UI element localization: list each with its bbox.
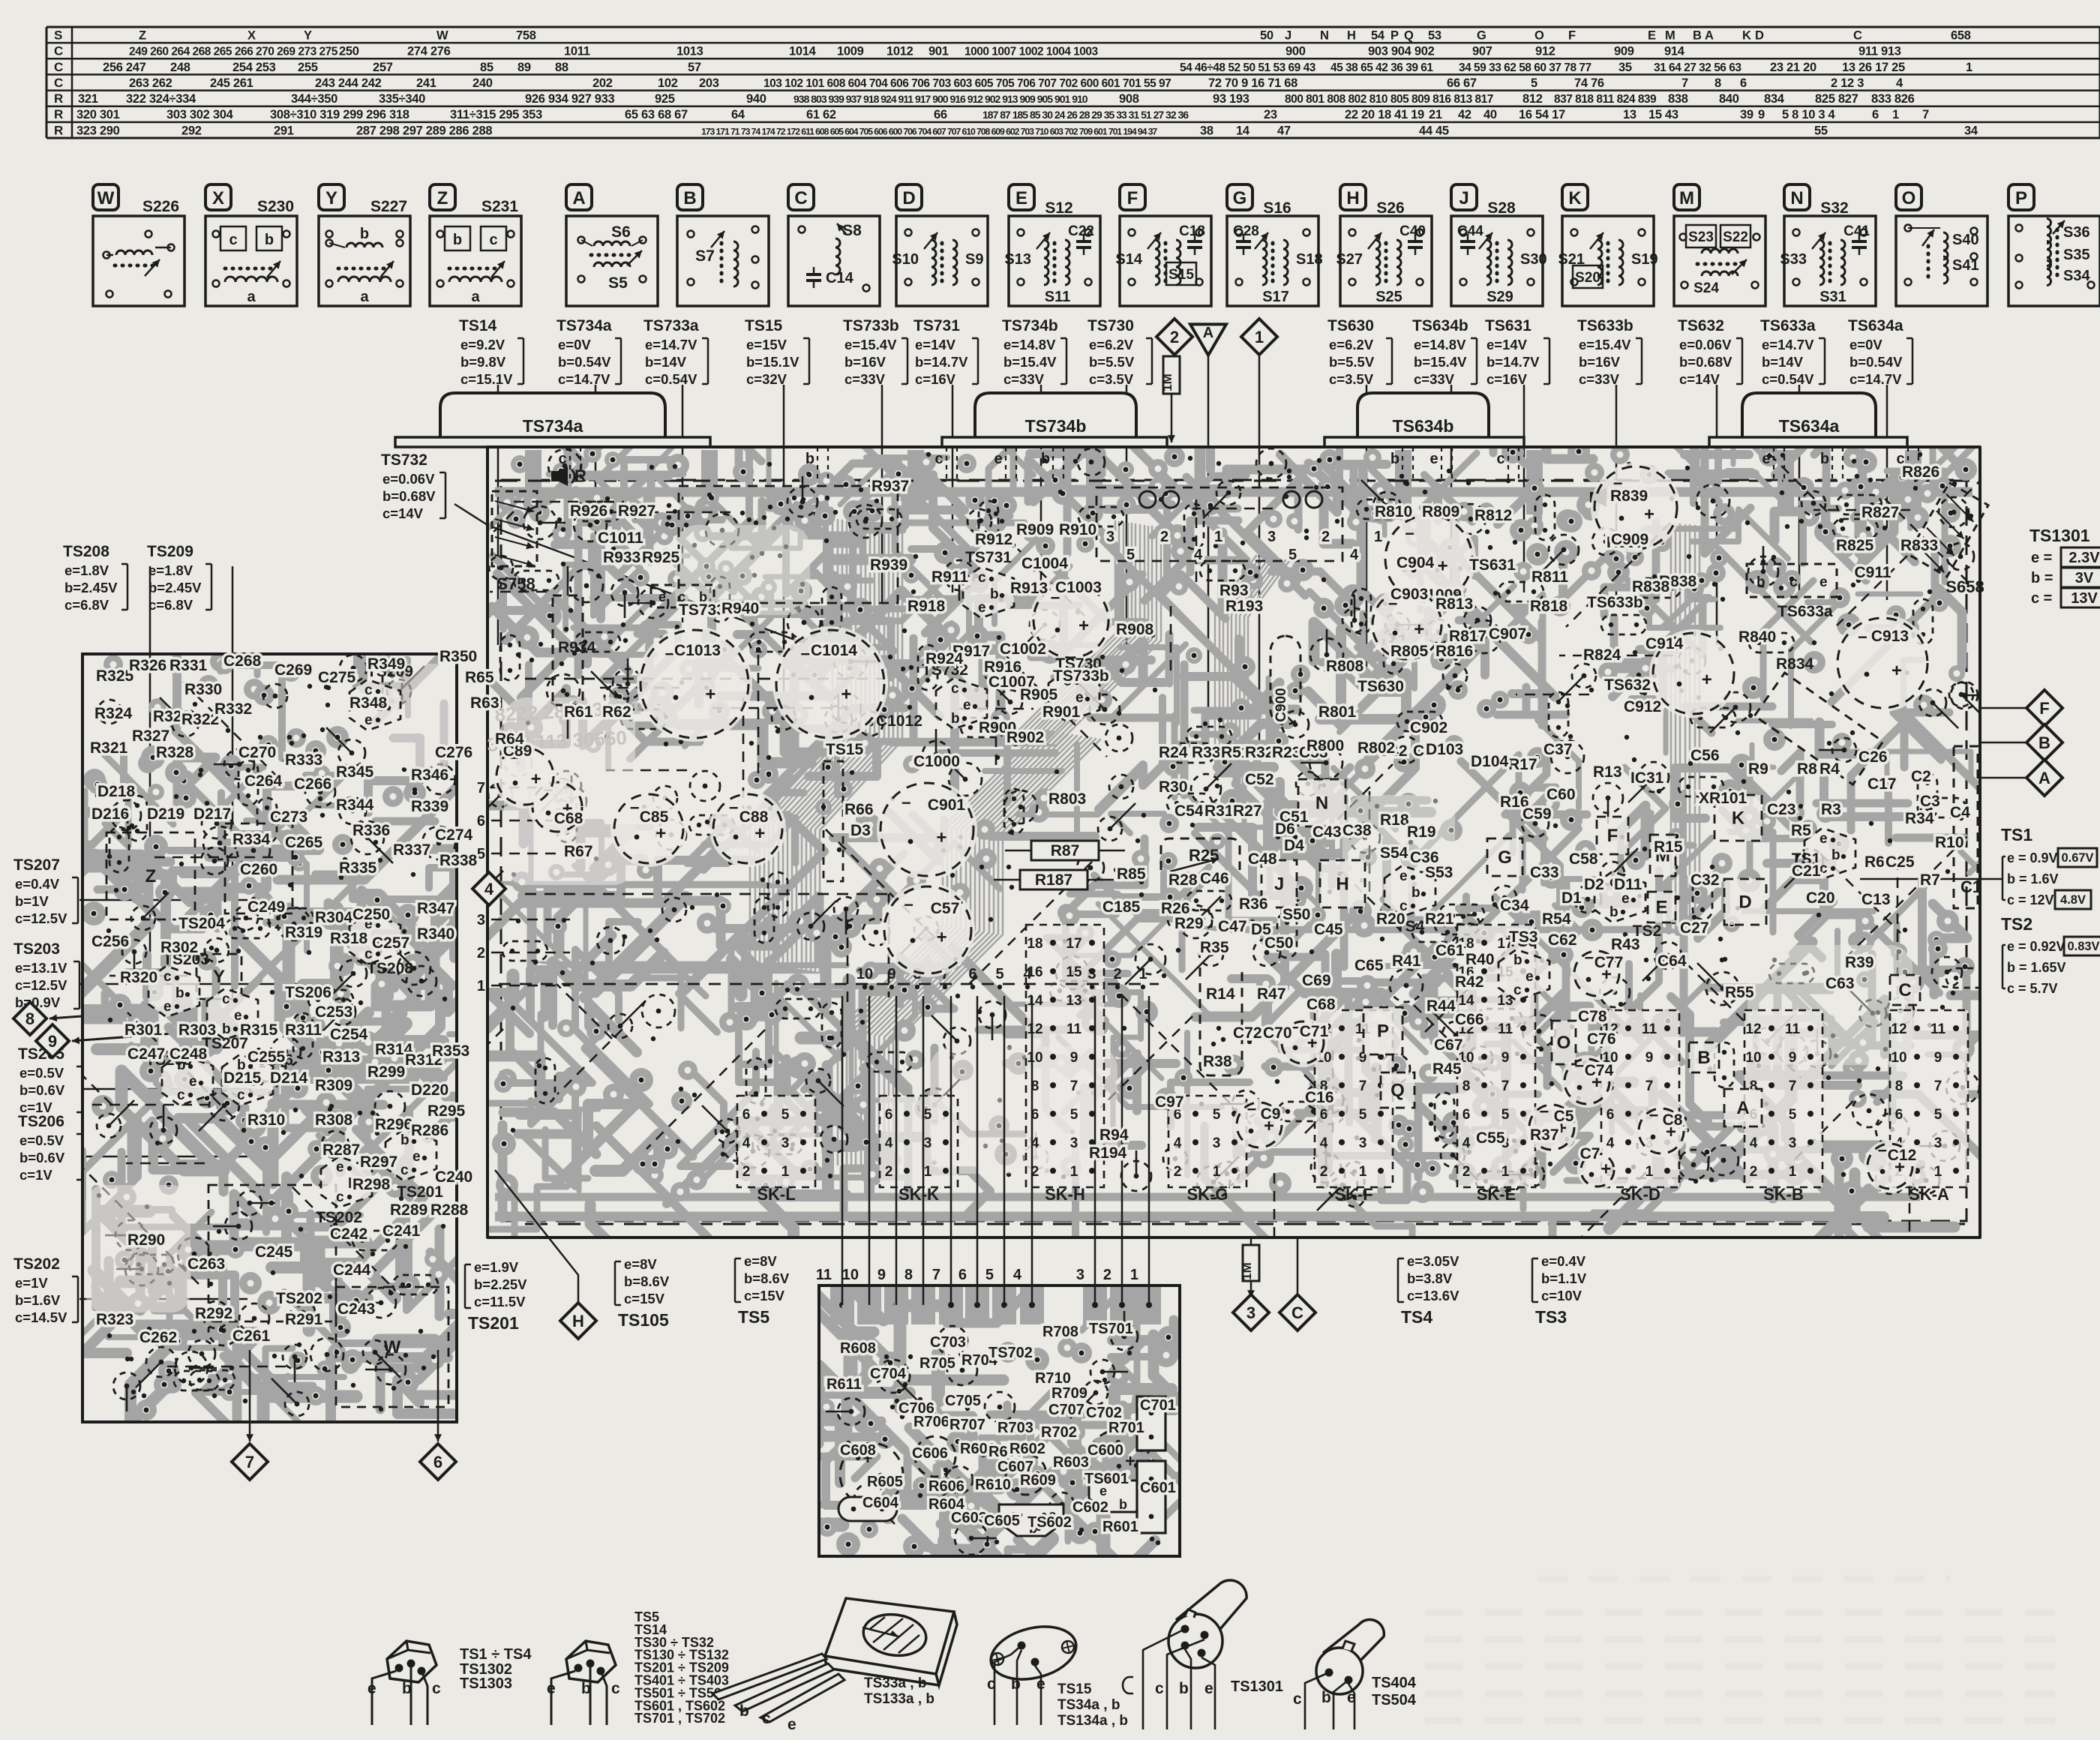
svg-text:C27: C27: [1680, 919, 1709, 937]
svg-text:TS203: TS203: [13, 940, 60, 958]
svg-text:M: M: [1665, 29, 1675, 43]
svg-text:C55: C55: [1476, 1129, 1505, 1147]
svg-text:R940: R940: [721, 600, 759, 617]
svg-text:1: 1: [1501, 1164, 1510, 1180]
svg-text:2: 2: [477, 945, 485, 961]
svg-text:SK-H: SK-H: [1045, 1185, 1085, 1204]
svg-text:c: c: [611, 1680, 620, 1697]
svg-text:6: 6: [477, 813, 485, 829]
svg-text:R826: R826: [1902, 463, 1939, 481]
svg-text:e=15.4V: e=15.4V: [844, 337, 897, 352]
svg-text:R10: R10: [1935, 834, 1964, 851]
svg-text:H: H: [1347, 29, 1356, 43]
svg-text:J: J: [1459, 188, 1468, 208]
svg-text:b: b: [1321, 1689, 1331, 1706]
svg-text:e=0.06V: e=0.06V: [382, 471, 435, 487]
svg-text:S33: S33: [1780, 251, 1807, 268]
svg-text:TS733b: TS733b: [843, 317, 899, 334]
svg-text:c=12.5V: c=12.5V: [15, 910, 67, 926]
svg-text:c: c: [762, 1710, 771, 1727]
svg-text:C65: C65: [1354, 957, 1384, 974]
svg-text:658: 658: [1951, 29, 1971, 43]
svg-text:R926: R926: [570, 502, 607, 520]
svg-text:J: J: [1285, 29, 1291, 43]
svg-text:C265: C265: [285, 834, 323, 851]
svg-text:R812: R812: [1474, 507, 1512, 524]
svg-text:912: 912: [1535, 45, 1555, 58]
svg-text:3: 3: [477, 912, 485, 928]
svg-text:C12: C12: [1888, 1147, 1917, 1164]
svg-text:6: 6: [1462, 1107, 1471, 1123]
svg-text:812: 812: [1522, 92, 1543, 106]
svg-text:240: 240: [472, 76, 493, 90]
svg-text:938 803 939 937 918 924 911 91: 938 803 939 937 918 924 911 917 900 916 …: [793, 93, 1088, 105]
svg-text:c=14V: c=14V: [1679, 371, 1720, 387]
svg-text:S53: S53: [1425, 864, 1453, 881]
svg-text:e=14.8V: e=14.8V: [1414, 337, 1466, 352]
svg-text:800 801 808 802 810 805 809 81: 800 801 808 802 810 805 809 816 813 817: [1285, 93, 1493, 106]
svg-text:P: P: [1390, 29, 1399, 43]
svg-text:C901: C901: [928, 796, 966, 814]
svg-text:9: 9: [1934, 1050, 1942, 1066]
svg-text:C264: C264: [244, 772, 283, 790]
svg-text:6: 6: [958, 1267, 967, 1283]
svg-text:C5: C5: [1554, 1108, 1574, 1125]
svg-text:b = 1.6V: b = 1.6V: [2007, 871, 2059, 886]
svg-text:R40: R40: [1465, 951, 1495, 968]
svg-text:8: 8: [1462, 1078, 1471, 1094]
svg-text:R346: R346: [411, 766, 448, 784]
svg-text:8: 8: [1895, 1078, 1903, 1094]
svg-text:C606: C606: [912, 1445, 948, 1462]
svg-text:C250: C250: [352, 906, 390, 923]
svg-text:a: a: [360, 289, 369, 305]
svg-text:c=10V: c=10V: [1541, 1288, 1582, 1303]
svg-text:R3: R3: [1821, 801, 1841, 818]
svg-text:S27: S27: [1336, 251, 1363, 268]
svg-text:R927: R927: [618, 502, 655, 520]
svg-text:−: −: [664, 645, 674, 664]
svg-text:D217: D217: [193, 805, 231, 823]
svg-text:C97: C97: [1155, 1093, 1184, 1111]
svg-text:274 276: 274 276: [407, 45, 451, 58]
svg-text:−: −: [729, 798, 739, 817]
svg-text:13: 13: [1066, 993, 1081, 1009]
svg-text:b=2.45V: b=2.45V: [148, 580, 202, 595]
svg-text:C58: C58: [1569, 850, 1598, 868]
svg-text:45 38 65 42 36 39 61: 45 38 65 42 36 39 61: [1330, 61, 1433, 74]
svg-text:7: 7: [1922, 108, 1929, 121]
svg-text:S14: S14: [1115, 251, 1142, 268]
svg-text:C603: C603: [951, 1510, 987, 1526]
svg-text:R918: R918: [907, 598, 946, 615]
svg-text:R911: R911: [931, 568, 968, 586]
svg-text:R803: R803: [1048, 790, 1086, 808]
svg-text:34 59 33 62 58 60 37 78 77: 34 59 33 62 58 60 37 78 77: [1459, 61, 1591, 74]
svg-text:e=14V: e=14V: [915, 337, 956, 352]
svg-text:5: 5: [1501, 1107, 1510, 1123]
svg-text:TS731: TS731: [965, 549, 1012, 566]
svg-text:R54: R54: [1542, 910, 1571, 928]
svg-text:Z: Z: [139, 29, 146, 43]
svg-text:22 20 18 41 19: 22 20 18 41 19: [1345, 108, 1424, 121]
svg-text:C1011: C1011: [598, 529, 643, 547]
svg-text:2.3V: 2.3V: [2068, 550, 2100, 566]
svg-text:c=14.7V: c=14.7V: [558, 371, 610, 387]
svg-text:F: F: [1568, 29, 1576, 43]
svg-text:c=33V: c=33V: [844, 371, 886, 387]
svg-text:S35: S35: [2063, 247, 2090, 263]
svg-text:R809: R809: [1422, 503, 1459, 520]
svg-text:G: G: [1233, 188, 1247, 208]
svg-text:335÷340: 335÷340: [379, 92, 425, 106]
svg-text:R44: R44: [1426, 997, 1456, 1015]
svg-text:R934: R934: [558, 639, 596, 656]
svg-text:+: +: [1600, 1159, 1611, 1180]
svg-text:838: 838: [1668, 92, 1688, 106]
svg-text:TS630: TS630: [1327, 317, 1374, 334]
svg-text:C253: C253: [315, 1003, 352, 1021]
svg-text:291: 291: [274, 124, 294, 137]
svg-text:12: 12: [1891, 1021, 1906, 1037]
svg-text:S11: S11: [1045, 289, 1070, 305]
svg-text:R939: R939: [870, 556, 907, 574]
svg-text:C903: C903: [1390, 586, 1428, 603]
svg-text:C601: C601: [1140, 1480, 1176, 1496]
svg-text:R55: R55: [1725, 984, 1754, 1001]
svg-text:9: 9: [1070, 1050, 1078, 1066]
svg-text:8: 8: [25, 1009, 34, 1028]
svg-text:14: 14: [1458, 993, 1474, 1009]
svg-text:1: 1: [1214, 529, 1222, 545]
svg-text:S17: S17: [1262, 289, 1289, 305]
svg-text:TS15: TS15: [1057, 1681, 1092, 1697]
svg-text:R801: R801: [1318, 703, 1357, 721]
svg-text:N: N: [1790, 188, 1803, 208]
svg-text:C52: C52: [1245, 771, 1274, 788]
svg-text:R66: R66: [844, 801, 874, 818]
svg-text:c: c: [1496, 451, 1504, 467]
svg-text:b=2.25V: b=2.25V: [474, 1276, 527, 1292]
svg-text:b: b: [1609, 904, 1618, 920]
svg-text:b: b: [1831, 847, 1840, 863]
svg-text:R18: R18: [1380, 811, 1409, 829]
svg-text:TS208: TS208: [63, 543, 109, 560]
svg-text:b: b: [1513, 952, 1522, 968]
svg-text:248: 248: [170, 61, 190, 74]
svg-text:b=14V: b=14V: [1762, 354, 1804, 370]
svg-text:S12: S12: [1045, 199, 1072, 217]
svg-text:−: −: [1585, 949, 1594, 967]
svg-text:6: 6: [1872, 108, 1879, 121]
svg-text:R94: R94: [1099, 1126, 1129, 1144]
svg-text:R93: R93: [1219, 582, 1249, 599]
svg-text:X: X: [247, 29, 256, 43]
svg-text:R331: R331: [169, 657, 208, 674]
svg-text:C261: C261: [232, 1327, 271, 1345]
svg-text:14: 14: [1236, 124, 1250, 137]
svg-text:R303: R303: [178, 1021, 216, 1039]
svg-text:C28: C28: [1233, 223, 1259, 239]
svg-text:1: 1: [1255, 328, 1264, 346]
svg-text:C: C: [1898, 980, 1911, 1000]
svg-text:c: c: [163, 969, 172, 985]
svg-text:D218: D218: [97, 783, 136, 800]
svg-text:A: A: [1705, 29, 1714, 43]
svg-text:B: B: [2038, 733, 2050, 752]
svg-text:R701: R701: [1108, 1420, 1144, 1436]
svg-text:256 247: 256 247: [103, 61, 146, 74]
svg-text:c: c: [336, 1189, 344, 1205]
svg-text:R708: R708: [1042, 1324, 1078, 1340]
svg-text:R17: R17: [1508, 756, 1537, 773]
svg-text:C22: C22: [1068, 223, 1094, 239]
svg-text:TS15: TS15: [745, 317, 783, 334]
svg-text:c=0.54V: c=0.54V: [645, 371, 697, 387]
svg-text:e: e: [1819, 574, 1828, 590]
svg-text:10: 10: [842, 1267, 859, 1283]
svg-text:R291: R291: [285, 1311, 323, 1328]
svg-text:R289: R289: [390, 1201, 427, 1219]
svg-text:C1002: C1002: [1000, 640, 1046, 658]
svg-text:b=14.7V: b=14.7V: [1486, 354, 1540, 370]
svg-text:S29: S29: [1486, 289, 1513, 305]
svg-text:10: 10: [1027, 1050, 1042, 1066]
svg-text:TS633a: TS633a: [1777, 603, 1833, 620]
svg-text:R299: R299: [367, 1063, 405, 1081]
svg-text:C4: C4: [1950, 804, 1970, 821]
svg-text:C62: C62: [1548, 931, 1577, 949]
svg-text:c=12.5V: c=12.5V: [15, 977, 67, 993]
svg-text:D3: D3: [850, 822, 871, 839]
svg-text:e: e: [367, 1680, 376, 1697]
svg-text:R334: R334: [232, 831, 271, 848]
svg-text:R42: R42: [1455, 973, 1484, 991]
svg-text:TS202: TS202: [316, 1209, 362, 1226]
svg-text:O: O: [1557, 1033, 1571, 1053]
svg-text:R21: R21: [1425, 910, 1454, 928]
svg-text:b: b: [1011, 1675, 1021, 1693]
svg-text:9: 9: [877, 1267, 886, 1283]
svg-text:255: 255: [298, 61, 318, 74]
svg-text:b=2.45V: b=2.45V: [64, 580, 118, 595]
svg-text:263 262: 263 262: [129, 76, 172, 90]
svg-text:D219: D219: [147, 805, 184, 823]
svg-text:245 261: 245 261: [210, 76, 253, 90]
svg-text:66: 66: [934, 108, 947, 121]
svg-text:c=3.5V: c=3.5V: [1329, 371, 1374, 387]
svg-text:S34: S34: [2063, 268, 2090, 284]
svg-text:S36: S36: [2063, 224, 2090, 241]
svg-text:S26: S26: [1376, 199, 1404, 217]
svg-text:C911: C911: [1854, 564, 1891, 581]
svg-text:173 171 71 73 74 174 72 172 61: 173 171 71 73 74 174 72 172 611 608 605 …: [701, 126, 1157, 136]
svg-text:R605: R605: [867, 1474, 903, 1490]
svg-text:+: +: [1644, 505, 1654, 525]
svg-text:C60: C60: [1546, 786, 1576, 803]
svg-text:C9: C9: [1261, 1105, 1281, 1123]
svg-text:c=15V: c=15V: [624, 1291, 665, 1306]
svg-text:e=1.9V: e=1.9V: [474, 1259, 519, 1275]
svg-text:−: −: [1649, 1106, 1659, 1125]
svg-text:c: c: [177, 1087, 185, 1103]
svg-text:TS1301: TS1301: [2029, 526, 2090, 545]
svg-text:C705: C705: [945, 1393, 981, 1409]
svg-text:1: 1: [1070, 1164, 1078, 1180]
svg-text:+: +: [655, 823, 666, 844]
svg-text:1: 1: [477, 978, 485, 994]
svg-text:R610: R610: [975, 1477, 1011, 1493]
svg-text:TS14: TS14: [459, 317, 497, 334]
svg-text:e: e: [978, 600, 986, 616]
svg-text:4: 4: [742, 1135, 751, 1151]
svg-text:TS201: TS201: [468, 1313, 519, 1333]
svg-text:TS602: TS602: [1027, 1514, 1072, 1531]
svg-text:c=16V: c=16V: [915, 371, 956, 387]
svg-text:C1013: C1013: [674, 642, 721, 659]
svg-text:S50: S50: [1282, 906, 1310, 923]
svg-text:9: 9: [1501, 1050, 1510, 1066]
svg-text:1011: 1011: [564, 45, 590, 58]
svg-text:H: H: [1346, 188, 1359, 208]
svg-text:R937: R937: [871, 478, 909, 495]
svg-text:TS201: TS201: [397, 1183, 443, 1201]
svg-text:R194: R194: [1089, 1144, 1127, 1162]
svg-text:D220: D220: [411, 1081, 448, 1099]
svg-text:TS631: TS631: [1485, 317, 1531, 334]
svg-text:TS202: TS202: [276, 1290, 322, 1307]
svg-text:S227: S227: [370, 198, 407, 215]
svg-text:15 43: 15 43: [1648, 108, 1678, 121]
svg-text:C47: C47: [1218, 918, 1247, 935]
svg-text:R37: R37: [1530, 1126, 1559, 1144]
svg-text:13V: 13V: [2071, 590, 2098, 607]
svg-text:TS1 ÷ TS4: TS1 ÷ TS4: [460, 1646, 532, 1663]
svg-text:c: c: [1819, 861, 1828, 877]
svg-text:1000 1007 1002 1004 1003: 1000 1007 1002 1004 1003: [964, 46, 1099, 58]
svg-text:C1003: C1003: [1055, 579, 1102, 596]
svg-text:C703: C703: [930, 1334, 966, 1351]
svg-text:7: 7: [1681, 76, 1688, 90]
svg-text:C68: C68: [1306, 996, 1336, 1013]
svg-text:b: b: [453, 232, 462, 248]
svg-text:D: D: [1755, 29, 1764, 43]
svg-text:c=33V: c=33V: [1003, 371, 1045, 387]
svg-text:10: 10: [1745, 1050, 1761, 1066]
svg-text:+: +: [937, 927, 947, 947]
svg-text:TS33a , b: TS33a , b: [864, 1675, 926, 1691]
svg-text:R296: R296: [375, 1116, 412, 1133]
svg-text:SK-D: SK-D: [1620, 1185, 1660, 1204]
svg-text:3: 3: [781, 1135, 790, 1151]
svg-text:1: 1: [1138, 966, 1147, 982]
svg-text:S54: S54: [1380, 844, 1408, 862]
svg-text:15: 15: [1066, 964, 1082, 980]
svg-text:TS734a: TS734a: [556, 317, 612, 334]
svg-text:R28: R28: [1168, 871, 1198, 889]
svg-text:C33: C33: [1530, 864, 1559, 881]
svg-text:b: b: [402, 1680, 412, 1697]
svg-text:c=14V: c=14V: [382, 505, 424, 521]
svg-text:b=9.8V: b=9.8V: [460, 354, 506, 370]
svg-text:c: c: [229, 232, 237, 248]
svg-text:R29: R29: [1174, 915, 1204, 932]
svg-text:c: c: [1293, 1690, 1302, 1708]
svg-text:W: W: [384, 1337, 401, 1357]
svg-text:e: e: [1036, 1675, 1045, 1693]
svg-text:5: 5: [1288, 547, 1297, 563]
svg-text:3: 3: [1359, 1135, 1367, 1151]
svg-text:e=9.2V: e=9.2V: [460, 337, 505, 352]
svg-text:940: 940: [746, 92, 766, 106]
svg-text:c=0.54V: c=0.54V: [1762, 371, 1814, 387]
svg-text:b: b: [1390, 451, 1399, 467]
svg-text:35: 35: [1618, 61, 1632, 74]
svg-text:C1000: C1000: [913, 753, 960, 770]
svg-text:837 818 811 824 839: 837 818 811 824 839: [1554, 93, 1657, 106]
svg-text:C260: C260: [240, 861, 277, 878]
svg-text:b=14V: b=14V: [645, 354, 687, 370]
svg-text:TS601: TS601: [1084, 1471, 1129, 1487]
svg-text:R335: R335: [339, 859, 377, 877]
svg-text:TS3: TS3: [1535, 1307, 1567, 1327]
svg-text:+: +: [936, 828, 946, 848]
svg-text:c: c: [558, 451, 566, 467]
svg-text:C255: C255: [247, 1048, 286, 1066]
svg-text:4: 4: [484, 880, 494, 898]
svg-text:4: 4: [1023, 966, 1032, 982]
svg-text:R8: R8: [1797, 760, 1817, 778]
svg-text:74 76: 74 76: [1574, 76, 1604, 90]
svg-text:R62: R62: [602, 703, 631, 721]
svg-text:3: 3: [1087, 966, 1096, 982]
svg-text:5: 5: [781, 1107, 790, 1123]
svg-text:R38: R38: [1203, 1053, 1232, 1070]
svg-text:e=14.8V: e=14.8V: [1003, 337, 1056, 352]
svg-text:C57: C57: [931, 900, 960, 917]
svg-text:R818: R818: [1530, 598, 1568, 615]
svg-text:TS731: TS731: [913, 317, 960, 334]
svg-text:187 87 185 85 30 24 26 28 29 3: 187 87 185 85 30 24 26 28 29 35 33 31 51…: [982, 109, 1189, 121]
svg-text:TS1: TS1: [2001, 825, 2032, 844]
svg-text:C: C: [1291, 1303, 1303, 1322]
svg-text:C18: C18: [1179, 223, 1205, 239]
svg-text:4: 4: [1194, 547, 1203, 563]
svg-text:e: e: [658, 589, 666, 604]
svg-text:C: C: [1853, 29, 1862, 43]
svg-text:C266: C266: [294, 775, 331, 793]
svg-text:c=33V: c=33V: [1579, 371, 1620, 387]
svg-text:2: 2: [1321, 529, 1330, 545]
svg-text:1: 1: [781, 1164, 790, 1180]
svg-text:TS404: TS404: [1372, 1675, 1417, 1691]
svg-text:R349: R349: [367, 655, 405, 673]
svg-text:R902: R902: [1006, 729, 1044, 746]
svg-text:11: 11: [816, 1267, 832, 1283]
svg-text:R302: R302: [160, 939, 198, 956]
svg-text:23 21 20: 23 21 20: [1770, 61, 1816, 74]
svg-text:R707: R707: [949, 1417, 985, 1433]
svg-text:R816: R816: [1435, 643, 1473, 660]
svg-text:R913: R913: [1010, 580, 1048, 597]
svg-text:c=6.8V: c=6.8V: [148, 597, 193, 613]
svg-text:C913: C913: [1871, 628, 1909, 645]
svg-text:R327: R327: [132, 727, 169, 745]
svg-text:C61: C61: [1435, 942, 1465, 959]
svg-text:XR101: XR101: [1699, 790, 1747, 807]
svg-text:b=0.68V: b=0.68V: [1679, 354, 1732, 370]
svg-text:c: c: [432, 1680, 441, 1697]
